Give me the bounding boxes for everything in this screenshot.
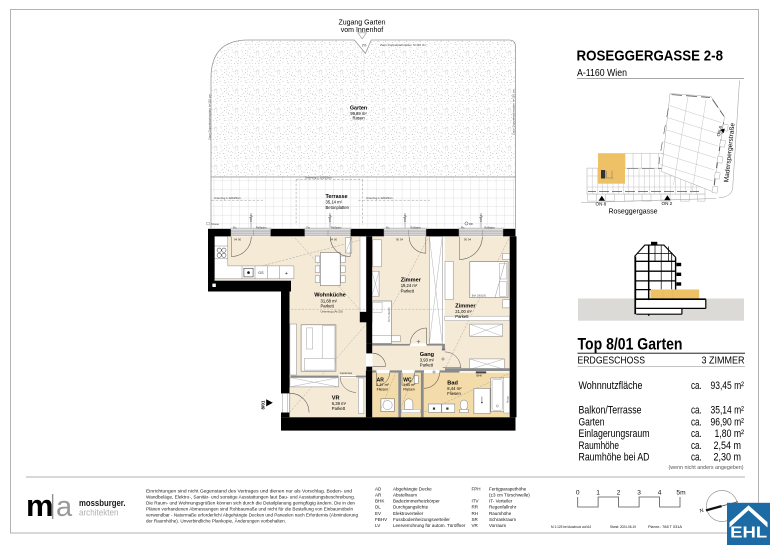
svg-text:Rollladen: Rollladen (411, 227, 422, 230)
svg-text:+: + (285, 271, 288, 277)
svg-text:Zaun Doppelstabmatten h=110 cm: Zaun Doppelstabmatten h=110 cm (380, 43, 426, 47)
svg-text:Fliesen: Fliesen (377, 388, 389, 392)
svg-text:94 90: 94 90 (330, 238, 337, 242)
svg-text:VR: VR (472, 523, 479, 528)
svg-text:Unterzug 1:120/25cm: Unterzug 1:120/25cm (305, 175, 332, 179)
svg-text:RH: RH (472, 511, 479, 516)
svg-text:35,14 m²: 35,14 m² (326, 200, 343, 205)
svg-text:BHK: BHK (375, 499, 384, 504)
svg-text:94 90: 94 90 (234, 238, 241, 242)
svg-text:AD: AD (375, 486, 382, 491)
svg-text:IT- Verteiler: IT- Verteiler (489, 499, 513, 504)
svg-text:Plänen vorhandenen Abmessungen: Plänen vorhandenen Abmessungen sind Rohb… (146, 507, 353, 512)
svg-text:93,45 m²: 93,45 m² (711, 380, 745, 392)
svg-text:Rasen: Rasen (352, 116, 365, 121)
svg-text:architekten: architekten (79, 507, 119, 518)
svg-text:M 1:125 bei Ausdruck auf A4: M 1:125 bei Ausdruck auf A4 (551, 525, 591, 529)
svg-text:Balkon/Terrasse: Balkon/Terrasse (579, 405, 642, 417)
svg-text:ca.: ca. (691, 440, 702, 452)
svg-text:96,90 m²: 96,90 m² (711, 416, 745, 428)
svg-text:5m: 5m (676, 490, 686, 497)
svg-text:ca.: ca. (691, 405, 702, 417)
svg-text:Rollladen: Rollladen (331, 227, 342, 230)
svg-text:DL: DL (375, 505, 381, 510)
svg-text:0: 0 (576, 490, 580, 497)
svg-text:90 94: 90 94 (396, 238, 403, 242)
svg-text:Wohnnutzfläche: Wohnnutzfläche (579, 380, 643, 392)
svg-text:Parkett: Parkett (332, 406, 346, 411)
svg-text:3 ZIMMER: 3 ZIMMER (702, 356, 745, 367)
svg-text:RR: RR (469, 222, 473, 226)
svg-text:BxH 180x200: BxH 180x200 (472, 295, 487, 298)
svg-text:N: N (699, 508, 704, 515)
svg-text:Top 8/01 Garten: Top 8/01 Garten (578, 335, 683, 354)
svg-text:ca.: ca. (691, 380, 702, 392)
svg-text:Stand: 2024-06-19: Stand: 2024-06-19 (610, 525, 636, 529)
svg-text:Einrichtungen sind nicht Gegen: Einrichtungen sind nicht Gegenstand des … (146, 489, 352, 494)
svg-text:1: 1 (596, 490, 600, 497)
svg-text:Rollladen: Rollladen (485, 227, 496, 230)
svg-text:4: 4 (658, 490, 662, 497)
svg-text:Parkett: Parkett (420, 363, 434, 368)
svg-text:Roseggergasse: Roseggergasse (608, 209, 657, 216)
svg-text:Einlagerungsraum: Einlagerungsraum (579, 428, 650, 440)
svg-text:Abgehängte Decke: Abgehängte Decke (393, 486, 432, 491)
svg-text:Ablage: Ablage (506, 395, 509, 403)
svg-text:AR: AR (375, 493, 382, 498)
svg-text:35,14 m²: 35,14 m² (711, 405, 745, 417)
svg-text:ROSEGGERGASSE 2-8: ROSEGGERGASSE 2-8 (577, 49, 724, 65)
svg-text:Fliesen: Fliesen (403, 388, 415, 392)
svg-text:Zaun Doppelstabmatten h=110 cm: Zaun Doppelstabmatten h=110 cm (511, 89, 515, 135)
svg-text:(wenn nicht anders angegeben): (wenn nicht anders angegeben) (669, 465, 744, 471)
svg-text:FPH: FPH (472, 486, 481, 491)
svg-text:8/01: 8/01 (260, 400, 265, 409)
svg-text:RR: RR (472, 505, 479, 510)
svg-text:Parkett: Parkett (401, 288, 415, 293)
svg-text:Plannr.: 768 T 031A: Plannr.: 768 T 031A (648, 525, 682, 529)
svg-text:2,30 m: 2,30 m (714, 452, 742, 464)
svg-text:Garten: Garten (579, 416, 605, 428)
svg-text:FBHV: FBHV (375, 517, 388, 522)
svg-text:Regenfallrohr: Regenfallrohr (489, 505, 517, 510)
svg-text:EHL: EHL (730, 524, 767, 541)
svg-text:ON 8: ON 8 (596, 202, 607, 207)
svg-text:m: m (26, 488, 54, 523)
svg-text:Parkett: Parkett (321, 303, 335, 308)
svg-text:verwendbar - Naturmaße erforde: verwendbar - Naturmaße erforderlich! Abg… (146, 513, 358, 518)
svg-text:der Raumhöhe). Unverbindliche: der Raumhöhe). Unverbindliche Plankopie,… (146, 518, 286, 524)
svg-text:SR: SR (472, 517, 479, 522)
svg-text:Garderobe: Garderobe (340, 371, 353, 375)
svg-text:ca.: ca. (691, 452, 702, 464)
svg-text:Unterzug 1:120/25cm: Unterzug 1:120/25cm (366, 196, 393, 200)
svg-text:Schrankraum: Schrankraum (489, 517, 516, 522)
svg-text:Raumhöhe bei AD: Raumhöhe bei AD (579, 452, 650, 464)
svg-text:2,54 m: 2,54 m (714, 440, 742, 452)
svg-text:Elektroverteiler: Elektroverteiler (393, 511, 424, 516)
svg-text:Fliesen: Fliesen (447, 391, 461, 396)
svg-text:EV: EV (375, 511, 382, 516)
svg-text:Wandbeläge, Elektro-, Sanitär-: Wandbeläge, Elektro-, Sanitär- und sonst… (146, 495, 355, 500)
svg-text:BHK: BHK (477, 374, 483, 378)
svg-text:Rollladen: Rollladen (256, 227, 267, 230)
svg-text:Die Raum- und Wohnungsgrößen k: Die Raum- und Wohnungsgrößen können sich… (146, 501, 355, 506)
svg-text:Maderspergerstraße: Maderspergerstraße (723, 122, 736, 182)
svg-text:Raumhöhe: Raumhöhe (579, 440, 620, 452)
svg-text:Zaun Doppelstabmatten h=110 cm: Zaun Doppelstabmatten h=110 cm (207, 94, 211, 140)
svg-text:Betonplatten: Betonplatten (326, 205, 350, 210)
svg-text:Niveau: Niveau (211, 222, 220, 226)
svg-text:Leerverrohrung für autom. Türö: Leerverrohrung für autom. Türöffner (393, 523, 466, 528)
svg-text:FPH 15: FPH 15 (479, 213, 483, 222)
svg-text:ON 2: ON 2 (662, 201, 673, 206)
svg-text:Raumhöhe: Raumhöhe (489, 511, 512, 516)
svg-text:Abstellraum: Abstellraum (393, 493, 417, 498)
svg-text:Zugang Garten: Zugang Garten (338, 20, 385, 27)
svg-text:GS: GS (258, 271, 264, 275)
svg-text:Badezimmerheizkörper: Badezimmerheizkörper (393, 499, 440, 504)
svg-text:FPH 15: FPH 15 (403, 213, 407, 222)
svg-text:ERDGESCHOSS: ERDGESCHOSS (578, 356, 646, 367)
svg-text:Durchgangslichte: Durchgangslichte (393, 505, 429, 510)
svg-text:FPH 15: FPH 15 (328, 213, 332, 222)
svg-text:1,80 m²: 1,80 m² (715, 428, 745, 440)
svg-text:Vorraum: Vorraum (489, 523, 506, 528)
svg-text:Parkett: Parkett (455, 314, 469, 319)
svg-text:ca.: ca. (691, 428, 702, 440)
svg-text:LV: LV (375, 523, 381, 528)
svg-text:A-1160 Wien: A-1160 Wien (577, 67, 627, 79)
svg-text:Unterzug (At-20): Unterzug (At-20) (321, 309, 343, 313)
svg-text:a: a (56, 491, 73, 523)
svg-text:3: 3 (637, 490, 641, 497)
svg-text:1,80 m²: 1,80 m² (403, 383, 416, 387)
svg-text:ITV: ITV (472, 499, 480, 504)
svg-text:2: 2 (617, 490, 621, 497)
svg-text:Fertigparapethöhe: Fertigparapethöhe (489, 486, 527, 491)
svg-text:90 94: 90 94 (464, 238, 471, 242)
svg-text:Fussbodenheizungsverteiler: Fussbodenheizungsverteiler (393, 517, 450, 522)
svg-text:(±3 cm Türschwelle): (±3 cm Türschwelle) (489, 493, 530, 498)
svg-text:ca.: ca. (691, 416, 702, 428)
svg-text:Unterzug 1:120/25cm: Unterzug 1:120/25cm (214, 196, 241, 200)
svg-text:1,57 m²: 1,57 m² (377, 383, 390, 387)
svg-text:FPH 15: FPH 15 (249, 213, 253, 222)
svg-text:2%: 2% (362, 44, 367, 48)
